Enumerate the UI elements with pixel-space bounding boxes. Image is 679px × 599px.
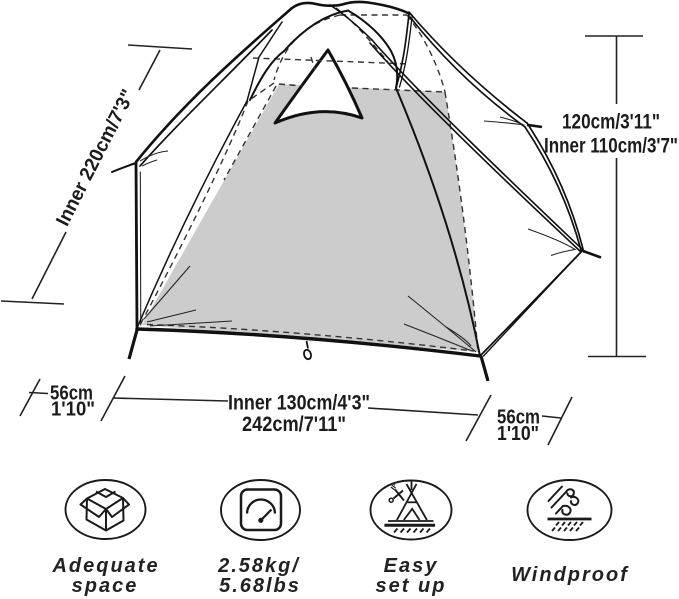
svg-text:Inner 110cm/3'7": Inner 110cm/3'7" [544, 135, 678, 158]
svg-text:5.68lbs: 5.68lbs [219, 575, 301, 597]
svg-text:242cm/7'11": 242cm/7'11" [242, 413, 346, 436]
svg-text:Inner 220cm/7'3": Inner 220cm/7'3" [52, 86, 140, 230]
svg-text:Easy: Easy [384, 555, 439, 577]
svg-text:120cm/3'11": 120cm/3'11" [562, 111, 660, 134]
svg-text:Inner 130cm/4'3": Inner 130cm/4'3" [228, 392, 370, 415]
svg-text:1'10": 1'10" [51, 399, 95, 421]
svg-text:Adequate: Adequate [51, 555, 159, 577]
svg-text:1'10": 1'10" [497, 423, 539, 445]
svg-text:set up: set up [376, 575, 447, 597]
svg-text:2.58kg/: 2.58kg/ [217, 555, 300, 577]
svg-text:space: space [72, 575, 139, 597]
svg-text:Windproof: Windproof [511, 564, 629, 586]
